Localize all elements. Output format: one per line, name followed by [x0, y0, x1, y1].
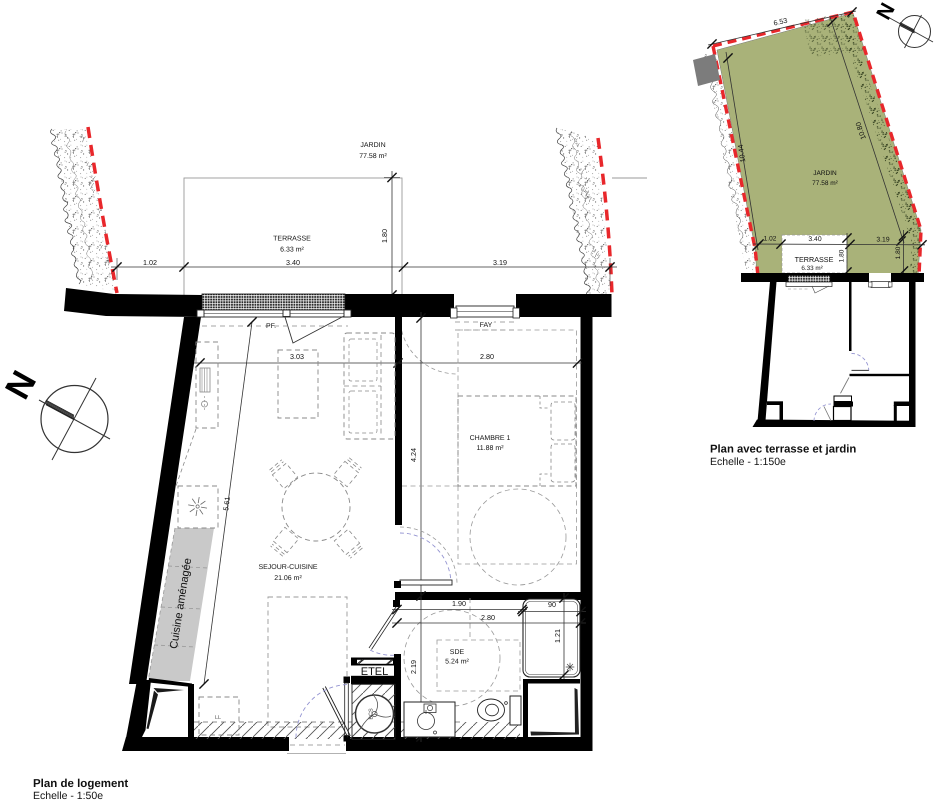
svg-text:ETEL: ETEL — [361, 666, 389, 678]
svg-text:77.58 m²: 77.58 m² — [812, 180, 838, 187]
svg-text:Echelle - 1:150e: Echelle - 1:150e — [710, 456, 786, 468]
svg-text:LL: LL — [215, 715, 221, 721]
svg-text:CHAMBRE 1: CHAMBRE 1 — [470, 435, 511, 442]
svg-text:5.61: 5.61 — [221, 496, 232, 511]
svg-text:1.02: 1.02 — [764, 236, 777, 243]
svg-text:3.40: 3.40 — [808, 236, 821, 243]
svg-text:21.06 m²: 21.06 m² — [274, 575, 302, 582]
svg-text:1.02: 1.02 — [143, 258, 157, 267]
svg-text:1.21: 1.21 — [553, 629, 562, 643]
svg-text:PF.: PF. — [266, 323, 276, 330]
svg-text:5.24 m²: 5.24 m² — [445, 659, 469, 666]
svg-text:TERRASSE: TERRASSE — [273, 236, 311, 243]
svg-text:6.33 m²: 6.33 m² — [280, 246, 304, 253]
svg-text:JARDIN: JARDIN — [360, 142, 385, 149]
svg-text:11.88 m²: 11.88 m² — [476, 445, 504, 452]
svg-text:4.24: 4.24 — [409, 448, 418, 462]
svg-text:2.19: 2.19 — [409, 660, 418, 674]
svg-text:3.19: 3.19 — [876, 236, 889, 243]
svg-text:Echelle - 1:50e: Echelle - 1:50e — [33, 790, 103, 800]
svg-text:2.80: 2.80 — [481, 613, 495, 622]
svg-text:3.03: 3.03 — [290, 352, 304, 361]
svg-text:3.19: 3.19 — [493, 258, 507, 267]
svg-text:2.80: 2.80 — [480, 352, 494, 361]
svg-text:TERRASSE: TERRASSE — [795, 255, 834, 264]
svg-text:3.40: 3.40 — [286, 258, 300, 267]
svg-text:1.80: 1.80 — [380, 229, 389, 243]
svg-text:6.33 m²: 6.33 m² — [801, 265, 822, 272]
svg-text:90: 90 — [548, 600, 556, 609]
svg-text:Plan de logement: Plan de logement — [33, 778, 128, 790]
svg-text:SEJOUR-CUISINE: SEJOUR-CUISINE — [258, 564, 317, 571]
svg-text:77.58 m²: 77.58 m² — [359, 153, 387, 160]
svg-text:1.80: 1.80 — [839, 249, 846, 262]
svg-text:1.90: 1.90 — [452, 599, 466, 608]
svg-text:FAY: FAY — [480, 322, 493, 329]
svg-text:Plan avec terrasse et jardin: Plan avec terrasse et jardin — [710, 444, 856, 456]
svg-text:BCS: BCS — [368, 708, 374, 720]
svg-text:SDE: SDE — [450, 649, 465, 656]
svg-text:JARDIN: JARDIN — [813, 170, 837, 177]
svg-text:1.80: 1.80 — [895, 246, 902, 259]
